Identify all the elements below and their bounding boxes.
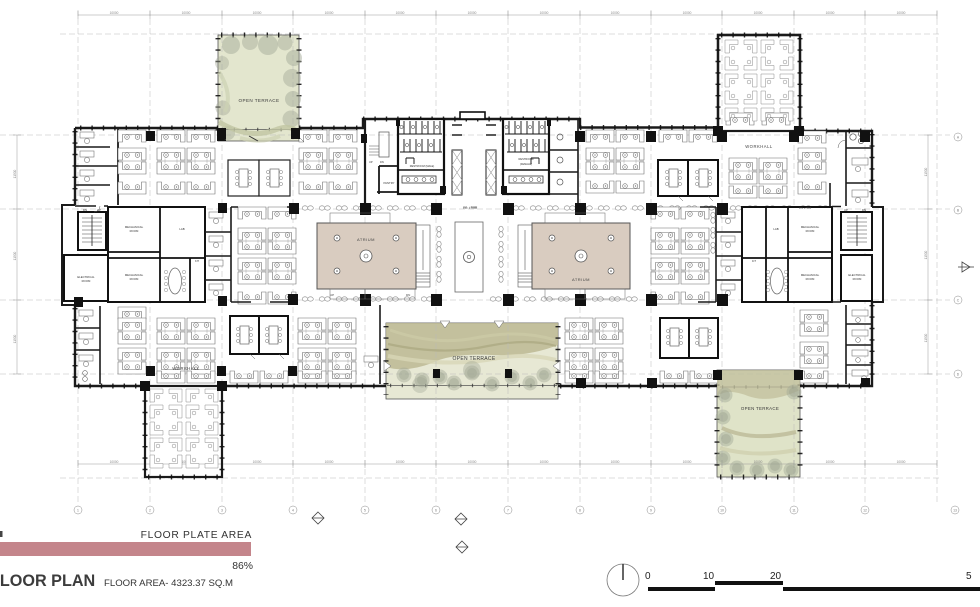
svg-text:12: 12 xyxy=(863,508,867,512)
svg-text:20: 20 xyxy=(770,571,782,582)
svg-text:UP: UP xyxy=(369,160,373,164)
svg-text:PANTRY: PANTRY xyxy=(383,181,394,185)
svg-text:11500: 11500 xyxy=(924,333,928,342)
svg-text:11500: 11500 xyxy=(13,169,17,178)
svg-text:DN: DN xyxy=(406,293,410,297)
svg-text:ATRIUM: ATRIUM xyxy=(357,237,375,242)
svg-text:LVL +7000: LVL +7000 xyxy=(463,205,478,209)
svg-text:3: 3 xyxy=(221,508,223,512)
svg-text:10000: 10000 xyxy=(611,460,620,464)
svg-text:OPEN TERRACE: OPEN TERRACE xyxy=(741,406,779,411)
svg-text:10000: 10000 xyxy=(110,11,119,15)
svg-text:10000: 10000 xyxy=(253,460,262,464)
svg-text:10000: 10000 xyxy=(396,460,405,464)
svg-text:11500: 11500 xyxy=(13,334,17,343)
svg-text:DN: DN xyxy=(862,208,866,212)
svg-text:ROOM: ROOM xyxy=(82,279,91,283)
svg-text:ROOM: ROOM xyxy=(130,277,139,281)
svg-text:(FEMALE): (FEMALE) xyxy=(520,162,532,166)
svg-text:FLOOR PLATE AREA: FLOOR PLATE AREA xyxy=(141,530,252,541)
svg-text:UP: UP xyxy=(330,293,334,297)
svg-text:UP: UP xyxy=(844,208,848,212)
svg-text:WORKHALL: WORKHALL xyxy=(172,366,200,371)
svg-text:10000: 10000 xyxy=(468,460,477,464)
svg-text:ATRIUM: ATRIUM xyxy=(572,277,590,282)
svg-text:10000: 10000 xyxy=(540,11,549,15)
svg-text:FLOOR PLAN: FLOOR PLAN xyxy=(0,572,95,590)
svg-text:8: 8 xyxy=(579,508,581,512)
svg-text:10: 10 xyxy=(703,571,715,582)
svg-text:10000: 10000 xyxy=(468,11,477,15)
svg-text:11500: 11500 xyxy=(924,250,928,259)
svg-text:10000: 10000 xyxy=(253,11,262,15)
svg-text:LVL +7000: LVL +7000 xyxy=(799,206,812,210)
svg-text:10000: 10000 xyxy=(396,11,405,15)
svg-text:10000: 10000 xyxy=(110,460,119,464)
svg-text:4: 4 xyxy=(292,508,294,512)
svg-text:10000: 10000 xyxy=(826,460,835,464)
svg-text:ICT: ICT xyxy=(752,259,757,263)
svg-text:10000: 10000 xyxy=(182,11,191,15)
svg-text:OPEN TERRACE: OPEN TERRACE xyxy=(239,98,280,103)
svg-text:DN: DN xyxy=(83,208,87,212)
svg-text:7: 7 xyxy=(507,508,509,512)
svg-text:RESTROOM: RESTROOM xyxy=(519,157,534,161)
svg-text:KIT: KIT xyxy=(195,259,199,263)
svg-text:13: 13 xyxy=(953,508,957,512)
svg-text:10000: 10000 xyxy=(754,11,763,15)
svg-text:10000: 10000 xyxy=(325,460,334,464)
svg-text:0: 0 xyxy=(645,571,651,582)
svg-text:5: 5 xyxy=(364,508,366,512)
svg-text:2: 2 xyxy=(149,508,151,512)
svg-text:ROOM: ROOM xyxy=(853,277,862,281)
svg-text:10000: 10000 xyxy=(683,460,692,464)
svg-text:WORKHALL: WORKHALL xyxy=(745,144,773,149)
svg-text:10000: 10000 xyxy=(897,460,906,464)
svg-text:ROOM: ROOM xyxy=(806,229,815,233)
svg-text:LAB: LAB xyxy=(773,227,778,231)
svg-text:10: 10 xyxy=(720,508,724,512)
svg-text:OPEN TERRACE: OPEN TERRACE xyxy=(453,356,496,362)
svg-text:RESTROOM (MALE): RESTROOM (MALE) xyxy=(410,164,435,168)
svg-text:ROOM: ROOM xyxy=(806,277,815,281)
svg-text:ROOM: ROOM xyxy=(130,229,139,233)
svg-text:6: 6 xyxy=(435,508,437,512)
svg-text:FLOOR AREA- 4323.37 SQ.M: FLOOR AREA- 4323.37 SQ.M xyxy=(104,578,233,589)
svg-text:10000: 10000 xyxy=(826,11,835,15)
svg-text:11500: 11500 xyxy=(13,251,17,260)
svg-text:86%: 86% xyxy=(232,561,253,572)
svg-text:5: 5 xyxy=(966,571,972,582)
svg-text:UP: UP xyxy=(97,208,101,212)
svg-text:11500: 11500 xyxy=(924,167,928,176)
svg-text:DN: DN xyxy=(380,160,384,164)
svg-text:10000: 10000 xyxy=(540,460,549,464)
svg-text:1: 1 xyxy=(77,508,79,512)
svg-text:10000: 10000 xyxy=(611,11,620,15)
svg-text:10000: 10000 xyxy=(325,11,334,15)
svg-text:10000: 10000 xyxy=(683,11,692,15)
svg-text:11: 11 xyxy=(792,508,796,512)
svg-text:10000: 10000 xyxy=(897,11,906,15)
svg-text:9: 9 xyxy=(650,508,652,512)
svg-text:LAB: LAB xyxy=(179,227,184,231)
